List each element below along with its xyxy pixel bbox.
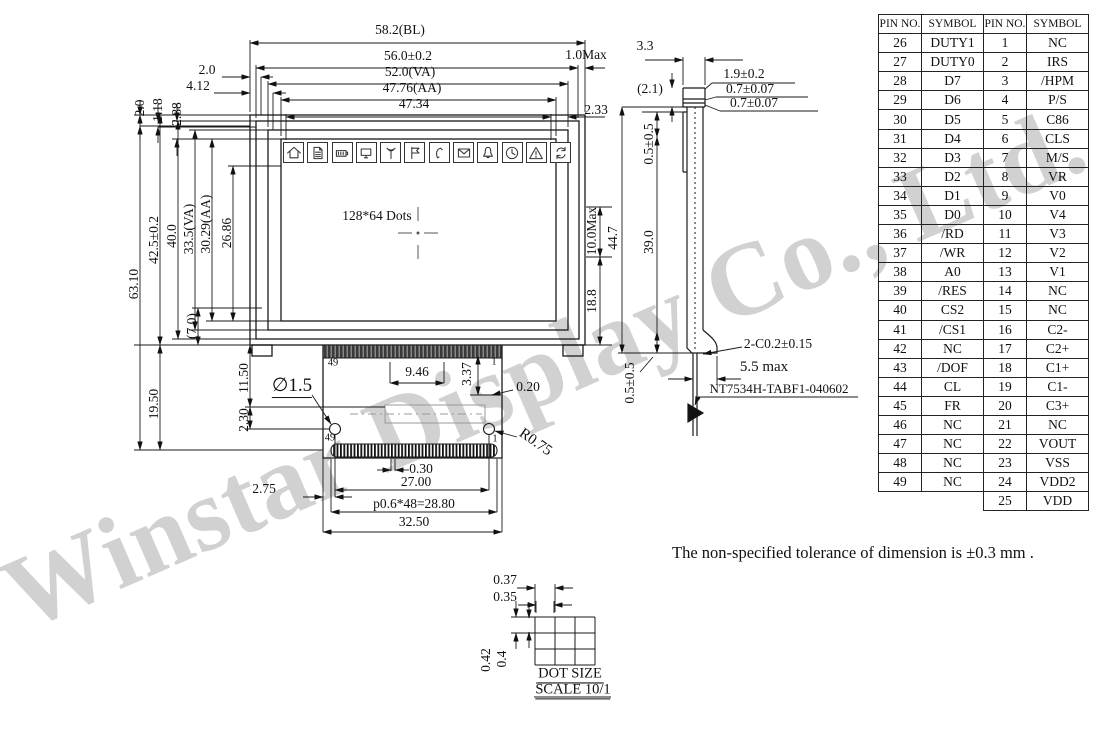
dim-side-body: 39.0 xyxy=(642,230,656,254)
pin-cell: D2 xyxy=(922,167,984,186)
table-row: 43/DOF18C1+ xyxy=(879,358,1089,377)
dim-hole-span: 27.00 xyxy=(401,475,431,489)
pin-cell: 3 xyxy=(984,72,1027,91)
dim-hole-offset-y1: 11.50 xyxy=(237,363,251,393)
pin-strip xyxy=(331,444,497,457)
dim-left-offset-a: 2.0 xyxy=(199,63,216,77)
pin-49-top-label: 49 xyxy=(328,357,339,368)
fpc-tail xyxy=(323,345,502,458)
pin-cell: 6 xyxy=(984,129,1027,148)
pin-cell: FR xyxy=(922,396,984,415)
pin-table-header: PIN NO. SYMBOL PIN NO. SYMBOL xyxy=(879,15,1089,34)
pin-cell: 1 xyxy=(984,34,1027,53)
pin-cell: 41 xyxy=(879,320,922,339)
dim-outline-width: 56.0±0.2 xyxy=(384,49,432,63)
mounting-holes xyxy=(330,424,495,435)
pin-cell: 8 xyxy=(984,167,1027,186)
pin-cell: 5 xyxy=(984,110,1027,129)
pin-cell: 35 xyxy=(879,205,922,224)
dim-dot-width: 0.35 xyxy=(493,590,517,604)
dim-bl-width: 58.2(BL) xyxy=(375,23,425,37)
document-icon xyxy=(307,142,328,163)
col-symbol-right: SYMBOL xyxy=(1027,15,1089,34)
clock-icon xyxy=(502,142,523,163)
pin-cell: VDD2 xyxy=(1027,473,1089,492)
dim-side-stack: (2.1) xyxy=(637,82,663,96)
pin-cell: A0 xyxy=(922,263,984,282)
tab-ic-triangle xyxy=(688,404,703,422)
dim-total-height: 63.10 xyxy=(127,269,141,299)
pin-cell: 13 xyxy=(984,263,1027,282)
pin-cell: D7 xyxy=(922,72,984,91)
empty-cell xyxy=(922,492,984,511)
dim-side-total: 44.7 xyxy=(606,226,620,250)
pin-cell: C2- xyxy=(1027,320,1089,339)
empty-cell xyxy=(879,492,922,511)
pin-cell: /DOF xyxy=(922,358,984,377)
pin-cell: NC xyxy=(922,415,984,434)
pin-1-bottom-label: 1 xyxy=(492,433,497,444)
dim-side-ic-max: 10.0Max xyxy=(585,207,599,255)
dim-va-height: 33.5(VA) xyxy=(182,204,196,254)
pin-cell: C86 xyxy=(1027,110,1089,129)
pin-cell: DUTY0 xyxy=(922,53,984,72)
table-row: 49NC24VDD2 xyxy=(879,473,1089,492)
dim-va-width: 52.0(VA) xyxy=(385,65,435,79)
pin-cell: 33 xyxy=(879,167,922,186)
pin-cell: V2 xyxy=(1027,244,1089,263)
pin-cell: 39 xyxy=(879,282,922,301)
dim-tail-a: 9.46 xyxy=(405,365,429,379)
table-row: 28D73/HPM xyxy=(879,72,1089,91)
pin-cell: 32 xyxy=(879,148,922,167)
pin-cell: D4 xyxy=(922,129,984,148)
dot-grid xyxy=(535,617,595,665)
dim-frame-height: 40.0 xyxy=(165,224,179,248)
pin-cell: 24 xyxy=(984,473,1027,492)
dim-aa-height: 30.29(AA) xyxy=(199,195,213,254)
pin-cell: D1 xyxy=(922,186,984,205)
pin-cell: IRS xyxy=(1027,53,1089,72)
table-row: 26DUTY11NC xyxy=(879,34,1089,53)
dim-side-lower: 18.8 xyxy=(585,289,599,313)
dim-pin-pitch: p0.6*48=28.80 xyxy=(373,497,455,511)
dim-dot-height: 0.4 xyxy=(495,651,509,668)
table-row: 34D19V0 xyxy=(879,186,1089,205)
tail-stiffener xyxy=(350,405,485,423)
dim-hole-offset-y2: 2.30 xyxy=(237,408,251,432)
pin-cell: 47 xyxy=(879,435,922,454)
table-row: 45FR20C3+ xyxy=(879,396,1089,415)
pin-cell: 44 xyxy=(879,377,922,396)
monitor-icon xyxy=(356,142,377,163)
dim-top-offset-c: 2.88 xyxy=(170,102,184,126)
display-dots-label: 128*64 Dots xyxy=(342,209,411,223)
pin-cell: 37 xyxy=(879,244,922,263)
pin-cell: 30 xyxy=(879,110,922,129)
pin-cell: 28 xyxy=(879,72,922,91)
dim-left-offset-b: 4.12 xyxy=(186,79,210,93)
table-row: 37/WR12V2 xyxy=(879,244,1089,263)
pin-cell: 15 xyxy=(984,301,1027,320)
table-row: 42NC17C2+ xyxy=(879,339,1089,358)
dim-icon-row-width: 47.34 xyxy=(399,97,429,111)
pin-cell: CS2 xyxy=(922,301,984,320)
pin-cell: C3+ xyxy=(1027,396,1089,415)
table-row: 35D010V4 xyxy=(879,205,1089,224)
dim-top-offset-b: 1.18 xyxy=(151,98,165,122)
pin-cell: NC xyxy=(1027,34,1089,53)
dim-right-inset: 2.33 xyxy=(584,103,608,117)
pin-cell: 7 xyxy=(984,148,1027,167)
table-row: 41/CS116C2- xyxy=(879,320,1089,339)
pin-cell: 43 xyxy=(879,358,922,377)
detail-scale: SCALE 10/1 xyxy=(535,682,610,699)
tolerance-note: The non-specified tolerance of dimension… xyxy=(672,543,1034,563)
part-number: NT7534H-TABF1-040602 xyxy=(709,382,848,396)
pin-cell: 9 xyxy=(984,186,1027,205)
dim-hole-diameter: ∅1.5 xyxy=(272,376,312,398)
dim-module-height: 42.5±0.2 xyxy=(147,216,161,264)
pin-cell: NC xyxy=(922,435,984,454)
flag-icon xyxy=(404,142,425,163)
pin-cell: 34 xyxy=(879,186,922,205)
pin-cell: D5 xyxy=(922,110,984,129)
pin-assignment-table: PIN NO. SYMBOL PIN NO. SYMBOL 26DUTY11NC… xyxy=(878,14,1089,511)
pin-cell: 36 xyxy=(879,225,922,244)
dim-chamfer: 2-C0.2±0.15 xyxy=(744,337,812,351)
phone-icon xyxy=(429,142,450,163)
dim-pin-margin: 2.75 xyxy=(252,482,276,496)
dim-side-top-width: 3.3 xyxy=(637,39,654,53)
pin-cell: 42 xyxy=(879,339,922,358)
dim-right-offset-max: 1.0Max xyxy=(565,48,607,62)
pin-cell: 31 xyxy=(879,129,922,148)
pin-cell: C1+ xyxy=(1027,358,1089,377)
pin-cell: 38 xyxy=(879,263,922,282)
pin-cell: 48 xyxy=(879,454,922,473)
table-row: 36/RD11V3 xyxy=(879,225,1089,244)
pin-49-bottom-label: 49 xyxy=(325,432,336,443)
dim-foot-max: 5.5 max xyxy=(740,360,788,376)
table-row: 39/RES14NC xyxy=(879,282,1089,301)
col-pin-no-right: PIN NO. xyxy=(984,15,1027,34)
pin-cell: 20 xyxy=(984,396,1027,415)
pin-cell: 25 xyxy=(984,492,1027,511)
table-row: 38A013V1 xyxy=(879,263,1089,282)
pin-cell: /WR xyxy=(922,244,984,263)
pin-cell: VDD xyxy=(1027,492,1089,511)
battery-icon xyxy=(332,142,353,163)
table-row: 46NC21NC xyxy=(879,415,1089,434)
pin-cell: DUTY1 xyxy=(922,34,984,53)
warning-icon xyxy=(526,142,547,163)
pin-cell: D0 xyxy=(922,205,984,224)
pin-cell: 4 xyxy=(984,91,1027,110)
pin-cell: 49 xyxy=(879,473,922,492)
col-pin-no-left: PIN NO. xyxy=(879,15,922,34)
table-row: 25VDD xyxy=(879,492,1089,511)
table-row: 29D64P/S xyxy=(879,91,1089,110)
refresh-icon xyxy=(550,142,571,163)
pin-cell: 45 xyxy=(879,396,922,415)
dim-tail-c: 0.20 xyxy=(516,380,540,394)
pin-cell: /HPM xyxy=(1027,72,1089,91)
table-row: 48NC23VSS xyxy=(879,454,1089,473)
pin-1-top-label: 1 xyxy=(491,356,496,367)
table-row: 44CL19C1- xyxy=(879,377,1089,396)
pin-cell: D6 xyxy=(922,91,984,110)
pin-cell: 26 xyxy=(879,34,922,53)
pin-cell: C1- xyxy=(1027,377,1089,396)
pin-cell: 17 xyxy=(984,339,1027,358)
pin-cell: NC xyxy=(922,473,984,492)
pin-cell: NC xyxy=(1027,301,1089,320)
pin-cell: 46 xyxy=(879,415,922,434)
table-row: 27DUTY02IRS xyxy=(879,53,1089,72)
dim-aa-width: 47.76(AA) xyxy=(383,81,442,95)
pin-cell: /CS1 xyxy=(922,320,984,339)
dim-tail-width: 32.50 xyxy=(399,515,429,529)
pin-cell: 23 xyxy=(984,454,1027,473)
pin-cell: V3 xyxy=(1027,225,1089,244)
table-row: 30D55C86 xyxy=(879,110,1089,129)
pin-cell: V0 xyxy=(1027,186,1089,205)
pin-cell: 19 xyxy=(984,377,1027,396)
pin-cell: V1 xyxy=(1027,263,1089,282)
pin-cell: C2+ xyxy=(1027,339,1089,358)
dim-dot-pitch-x: 0.37 xyxy=(493,573,517,587)
tail-contact-band xyxy=(323,345,502,358)
lcd-icon-row xyxy=(283,142,575,163)
pin-cell: V4 xyxy=(1027,205,1089,224)
pin-cell: 2 xyxy=(984,53,1027,72)
table-row: 31D46CLS xyxy=(879,129,1089,148)
antenna-icon xyxy=(380,142,401,163)
pin-cell: /RES xyxy=(922,282,984,301)
pin-cell: 16 xyxy=(984,320,1027,339)
dim-glass-c: 0.7±0.07 xyxy=(730,96,778,110)
side-view-dimensions xyxy=(585,57,858,405)
pin-cell: NC xyxy=(1027,415,1089,434)
pin-cell: 18 xyxy=(984,358,1027,377)
table-row: 47NC22VOUT xyxy=(879,435,1089,454)
dim-dot-pitch-y: 0.42 xyxy=(479,648,493,672)
table-row: 40CS215NC xyxy=(879,301,1089,320)
dim-side-gap-bottom: 0.5±0.5 xyxy=(623,362,637,403)
table-row: 32D37M/S xyxy=(879,148,1089,167)
display-window xyxy=(281,139,556,321)
pin-cell: D3 xyxy=(922,148,984,167)
home-icon xyxy=(283,142,304,163)
pin-cell: VSS xyxy=(1027,454,1089,473)
pin-cell: 21 xyxy=(984,415,1027,434)
pin-cell: VR xyxy=(1027,167,1089,186)
dim-glass-a: 1.9±0.2 xyxy=(723,67,764,81)
dim-side-gap-top: 0.5±0.5 xyxy=(642,123,656,164)
table-row: 33D28VR xyxy=(879,167,1089,186)
dim-bottom-bezel: (7.0) xyxy=(185,313,199,339)
col-symbol-left: SYMBOL xyxy=(922,15,984,34)
pin-cell: NC xyxy=(1027,282,1089,301)
pin-cell: 22 xyxy=(984,435,1027,454)
dim-tail-b: 3.37 xyxy=(460,362,474,386)
pin-cell: 29 xyxy=(879,91,922,110)
mail-icon xyxy=(453,142,474,163)
drawing-sheet: Winstar Display Co., Ltd. xyxy=(0,0,1107,729)
pin-cell: 27 xyxy=(879,53,922,72)
pin-cell: 11 xyxy=(984,225,1027,244)
pin-cell: CL xyxy=(922,377,984,396)
pin-cell: 40 xyxy=(879,301,922,320)
dim-tail-height: 19.50 xyxy=(147,389,161,419)
dim-display-height: 26.86 xyxy=(220,218,234,248)
pin-cell: P/S xyxy=(1027,91,1089,110)
pin-cell: CLS xyxy=(1027,129,1089,148)
pin-cell: NC xyxy=(922,339,984,358)
pin-cell: 12 xyxy=(984,244,1027,263)
pin-cell: M/S xyxy=(1027,148,1089,167)
dim-top-offset-a: 2.0 xyxy=(133,100,147,117)
pin-cell: /RD xyxy=(922,225,984,244)
pin-cell: 10 xyxy=(984,205,1027,224)
pin-cell: 14 xyxy=(984,282,1027,301)
pin-cell: NC xyxy=(922,454,984,473)
pin-cell: VOUT xyxy=(1027,435,1089,454)
bell-icon xyxy=(477,142,498,163)
